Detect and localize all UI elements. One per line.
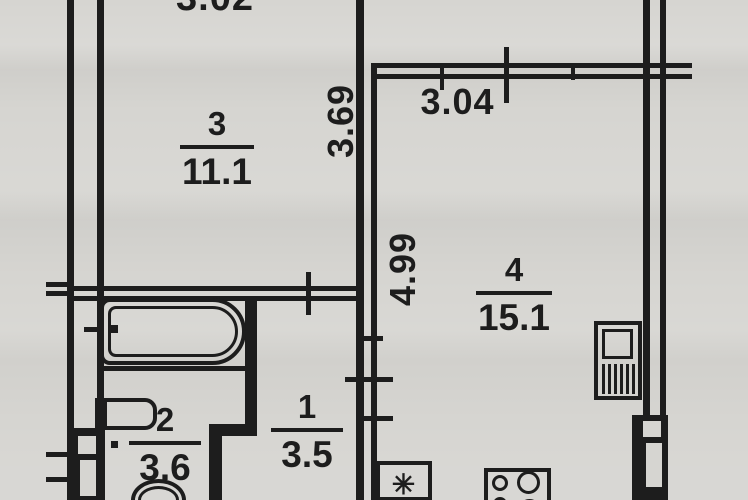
wall-stub-left-2 [46, 291, 68, 296]
kitchen-sink-asterisk-icon: ✳ [382, 468, 426, 500]
room-area: 15.1 [476, 295, 552, 339]
heater-grille-line [632, 364, 635, 394]
dim-tick-hall-1 [361, 336, 383, 341]
shaft-right-slot-2 [646, 443, 662, 487]
room-number: 3 [180, 106, 254, 149]
washbasin-edge [104, 400, 107, 428]
wall-center-a [356, 0, 364, 500]
heater-window [602, 329, 633, 359]
duct-left-slot-1 [78, 436, 96, 454]
dim-tick-room3-bottom [306, 272, 311, 315]
room-label-2: 2 3.6 [129, 402, 201, 489]
room-label-4: 4 15.1 [476, 252, 552, 339]
duct-left-slot-2 [80, 460, 96, 496]
bathtub-drain-icon [110, 325, 118, 333]
room-number: 2 [129, 402, 201, 445]
heater-grille-line [608, 364, 611, 394]
dimension-top-partial: 3.02 [165, 0, 265, 20]
room-area: 3.5 [271, 432, 343, 476]
wall-bathroom-right [245, 296, 257, 430]
wall-stub-left-4 [46, 477, 68, 482]
shaft-right-slot-1 [643, 421, 661, 437]
dim-tick-kitchen-mid [571, 64, 575, 80]
bathtub-inner [108, 306, 238, 357]
dimension-kitchen-width: 3.04 [410, 81, 505, 123]
wall-center-b [371, 64, 377, 500]
wall-room3-bottom-a [72, 286, 364, 291]
heater-grille-line [602, 364, 605, 394]
wall-under-tub [100, 366, 245, 371]
room-label-3: 3 11.1 [180, 106, 254, 193]
dim-tick-hall-3 [359, 416, 393, 421]
wall-left-outer [67, 0, 74, 500]
wall-stub-left-1 [46, 282, 68, 287]
heater-grille-line [626, 364, 629, 394]
wall-bathroom-lower [209, 430, 222, 500]
stove-burner-small-1 [492, 475, 508, 491]
room-number: 1 [271, 389, 343, 432]
floor-plan: ✳ 3 11.1 4 15.1 2 3.6 1 3.5 3.02 3.04 3.… [0, 0, 748, 500]
dim-tick-hall-2 [345, 377, 393, 382]
heater-grille-line [620, 364, 623, 394]
bathtub-wall-connector [84, 327, 100, 332]
room-label-1: 1 3.5 [271, 389, 343, 476]
dimension-room3-depth: 3.69 [323, 76, 359, 166]
dimension-kitchen-depth: 4.99 [385, 224, 421, 314]
bathroom-dot [111, 441, 118, 448]
room-number: 4 [476, 252, 552, 295]
room-area: 3.6 [129, 445, 201, 489]
wall-stub-left-3 [46, 452, 68, 457]
room-area: 11.1 [180, 149, 254, 193]
stove-burner-large-1 [517, 471, 540, 494]
heater-grille-line [614, 364, 617, 394]
